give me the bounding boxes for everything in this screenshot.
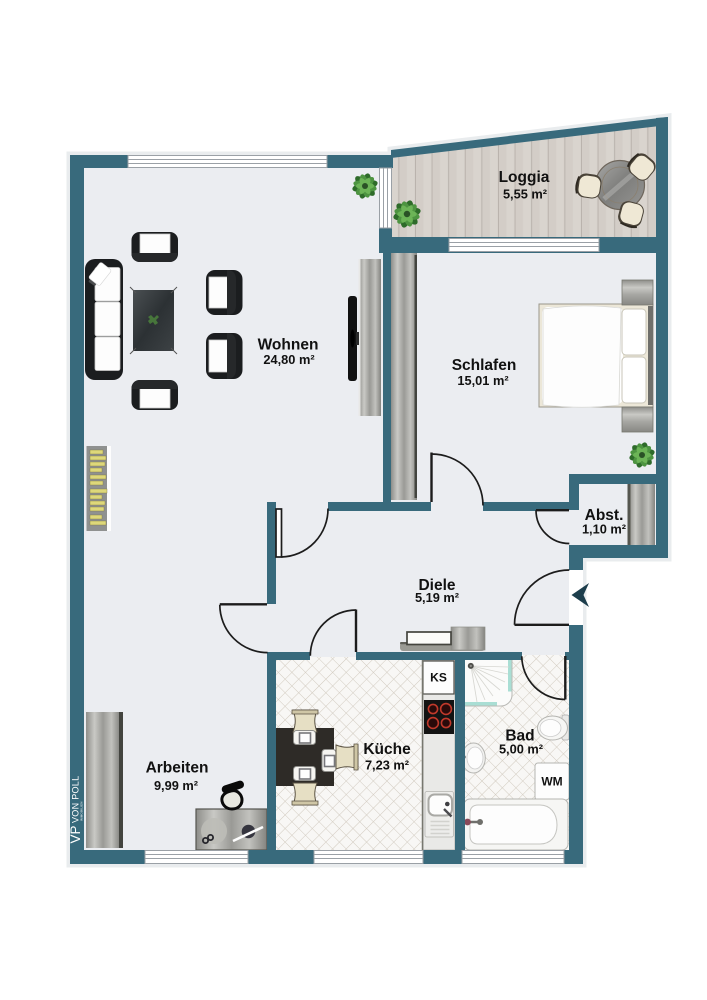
svg-text:1,10 m²: 1,10 m²: [582, 522, 626, 537]
svg-text:IMMOBILIEN: IMMOBILIEN: [80, 801, 84, 821]
svg-text:24,80 m²: 24,80 m²: [263, 352, 314, 367]
svg-text:Loggia: Loggia: [499, 169, 550, 186]
svg-text:KS: KS: [430, 671, 447, 685]
svg-text:VP: VP: [68, 825, 83, 843]
svg-text:7,23 m²: 7,23 m²: [365, 758, 409, 773]
svg-text:WM: WM: [541, 775, 562, 789]
svg-text:Arbeiten: Arbeiten: [146, 760, 209, 777]
svg-text:Schlafen: Schlafen: [452, 357, 517, 374]
svg-text:5,00 m²: 5,00 m²: [499, 742, 543, 757]
svg-text:Küche: Küche: [363, 741, 411, 758]
svg-text:9,99 m²: 9,99 m²: [154, 778, 198, 793]
svg-text:15,01 m²: 15,01 m²: [457, 373, 508, 388]
svg-text:5,55 m²: 5,55 m²: [503, 187, 547, 202]
svg-text:5,19 m²: 5,19 m²: [415, 590, 459, 605]
svg-text:Wohnen: Wohnen: [258, 337, 319, 354]
